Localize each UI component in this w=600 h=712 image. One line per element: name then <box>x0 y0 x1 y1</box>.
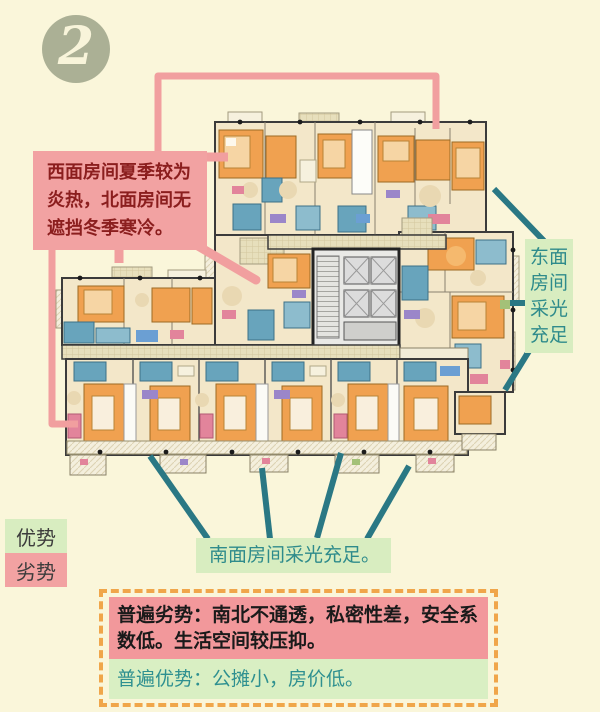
main-corridor <box>62 345 400 359</box>
summary-disadvantage: 普遍劣势：南北不通透，私密性差，安全系数低。生活空间较压抑。 <box>109 597 488 659</box>
west-disadvantage-note: 西面房间夏季较为炎热，北面房间无遮挡冬季寒冷。 <box>33 151 207 250</box>
summary-advantage-text: 普遍优势：公摊小，房价低。 <box>117 668 364 690</box>
step-number: 2 <box>58 21 94 73</box>
infographic-canvas: 2 西面房间夏季较为炎热，北面房间无遮挡冬季寒冷。 东面房间采光充足 南面房间采… <box>0 0 600 712</box>
legend-disadvantage: 劣势 <box>5 553 67 587</box>
south-pointer-3 <box>317 453 341 538</box>
south-pointer-2 <box>262 468 270 539</box>
summary-disadvantage-text: 普遍劣势：南北不通透，私密性差，安全系数低。生活空间较压抑。 <box>117 604 478 652</box>
south-pointer-4 <box>367 466 409 539</box>
legend-advantage: 优势 <box>5 519 67 553</box>
legend-advantage-label: 优势 <box>16 522 56 551</box>
north-corridor <box>268 235 446 249</box>
south-note-text: 南面房间采光充足。 <box>209 544 380 566</box>
east-note-text: 东面房间采光充足 <box>530 246 568 346</box>
west-note-text: 西面房间夏季较为炎热，北面房间无遮挡冬季寒冷。 <box>47 162 191 239</box>
midwest-wing <box>205 235 313 345</box>
legend-disadvantage-label: 劣势 <box>16 556 56 585</box>
summary-box: 普遍劣势：南北不通透，私密性差，安全系数低。生活空间较压抑。 普遍优势：公摊小，… <box>99 589 498 707</box>
summary-advantage: 普遍优势：公摊小，房价低。 <box>109 659 488 699</box>
elevator-core <box>313 249 399 347</box>
southeast-block <box>455 392 505 450</box>
east-advantage-note: 东面房间采光充足 <box>525 239 573 353</box>
north-wing <box>215 112 486 235</box>
south-wing <box>66 359 468 475</box>
step-badge: 2 <box>42 15 110 83</box>
south-advantage-note: 南面房间采光充足。 <box>196 538 391 573</box>
